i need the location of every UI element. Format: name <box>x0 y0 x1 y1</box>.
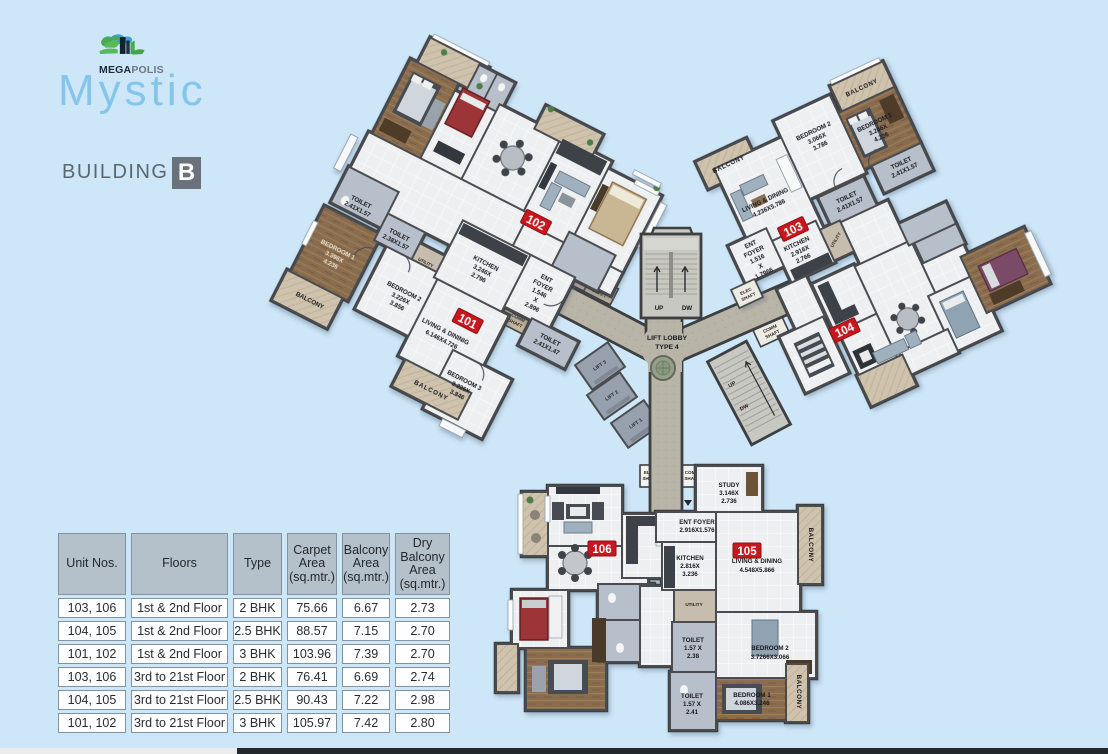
svg-text:4.548X5.866: 4.548X5.866 <box>739 567 775 574</box>
svg-text:3.146X: 3.146X <box>719 490 739 497</box>
svg-text:2.736: 2.736 <box>721 498 737 505</box>
svg-text:4.086X3.246: 4.086X3.246 <box>734 700 770 707</box>
svg-text:106: 106 <box>592 544 611 556</box>
svg-text:UP: UP <box>655 305 664 312</box>
svg-text:LIFT LOBBY: LIFT LOBBY <box>647 335 687 342</box>
svg-text:BEDROOM 2: BEDROOM 2 <box>751 645 789 652</box>
svg-text:KITCHEN: KITCHEN <box>676 555 704 562</box>
svg-text:BALCONY: BALCONY <box>795 675 802 710</box>
svg-text:2.816X: 2.816X <box>680 563 700 570</box>
svg-text:TYPE 4: TYPE 4 <box>655 344 679 351</box>
svg-text:3.7266X3.066: 3.7266X3.066 <box>751 654 790 661</box>
svg-text:TOILET: TOILET <box>681 693 703 700</box>
svg-text:1.57 X: 1.57 X <box>683 701 702 708</box>
svg-text:TOILET: TOILET <box>682 637 704 644</box>
svg-text:2.916X1.576: 2.916X1.576 <box>679 527 715 534</box>
svg-text:105: 105 <box>737 546 757 558</box>
svg-text:1.57 X: 1.57 X <box>684 645 703 652</box>
svg-text:LIVING & DINING: LIVING & DINING <box>732 558 782 565</box>
svg-text:ENT FOYER: ENT FOYER <box>679 519 715 526</box>
svg-text:2.41: 2.41 <box>686 709 699 716</box>
svg-text:DW: DW <box>682 305 692 312</box>
svg-text:3.236: 3.236 <box>682 571 698 578</box>
svg-text:UTILITY: UTILITY <box>685 602 702 607</box>
svg-text:BEDROOM 1: BEDROOM 1 <box>733 692 771 699</box>
svg-text:BALCONY: BALCONY <box>807 528 814 563</box>
svg-text:STUDY: STUDY <box>719 482 741 489</box>
svg-text:2.38: 2.38 <box>687 653 700 660</box>
